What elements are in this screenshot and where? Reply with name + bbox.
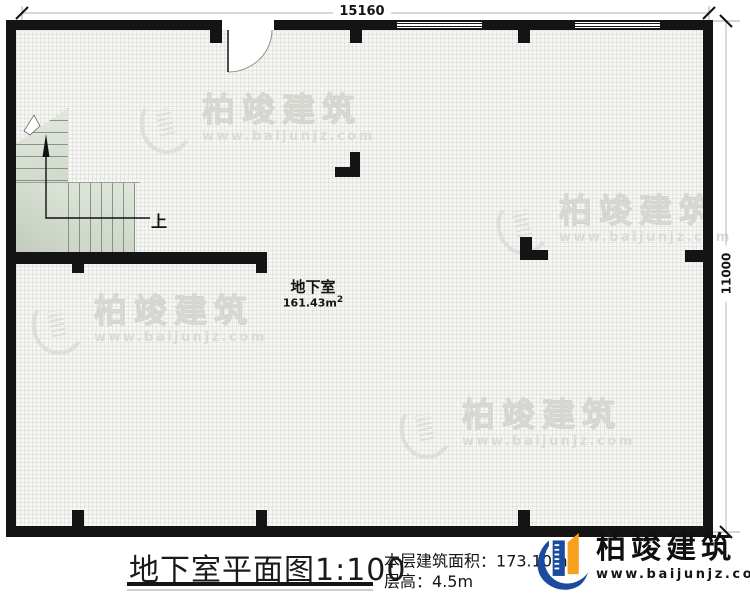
- dimension-label-top: 15160: [333, 4, 391, 19]
- column-pier: [518, 30, 530, 43]
- room-area-sup: 2: [337, 295, 343, 305]
- wall-top-segment: [482, 20, 575, 30]
- watermark-url: www.baijunjz.com: [202, 129, 375, 144]
- l-column: [520, 250, 548, 260]
- dimension-tick: [703, 7, 715, 19]
- watermark-logo-icon: [27, 292, 90, 360]
- watermark: 柏竣建筑 www.baijunjz.com: [32, 293, 267, 355]
- window-symbol: [397, 20, 482, 30]
- watermark-brand-name: 柏竣建筑: [462, 397, 635, 433]
- wall-top-segment: [6, 20, 222, 30]
- watermark-text: 柏竣建筑 www.baijunjz.com: [202, 92, 375, 144]
- window-glazing-line: [575, 23, 660, 24]
- column-pier: [210, 30, 222, 43]
- wall-top-segment: [274, 20, 397, 30]
- floor-height-label: 层高：: [384, 572, 432, 591]
- column-pier: [256, 510, 267, 526]
- brand-logo: 柏竣建筑 www.baijunjz.com: [534, 531, 750, 591]
- column-pier: [518, 510, 530, 526]
- room-label: 地下室 161.43m2: [276, 279, 350, 309]
- watermark-text: 柏竣建筑 www.baijunjz.com: [94, 293, 267, 345]
- wall-left: [6, 20, 16, 537]
- logo-tower-orange: [568, 533, 579, 574]
- watermark-url: www.baijunjz.com: [94, 330, 267, 345]
- watermark-building-icon: [155, 108, 175, 137]
- brand-name: 柏竣建筑: [596, 531, 750, 567]
- title-underline-thin: [127, 589, 373, 591]
- brand-logo-icon: [534, 531, 590, 591]
- floor-plan-sheet: 柏竣建筑 www.baijunjz.com 柏竣建筑 www.baijunjz.…: [0, 0, 750, 598]
- wall-stub: [685, 250, 703, 262]
- watermark-brand-name: 柏竣建筑: [202, 92, 375, 128]
- window-glazing-line: [397, 26, 482, 27]
- column-pier: [350, 30, 362, 43]
- floor-height-value: 4.5m: [432, 572, 473, 591]
- watermark-logo-icon: [395, 396, 458, 464]
- room-name: 地下室: [276, 279, 350, 296]
- column-pier: [72, 252, 84, 273]
- title-underline-thick: [127, 582, 373, 586]
- room-area: 161.43m2: [276, 296, 350, 310]
- interior-wall: [6, 252, 267, 264]
- floor-area-label: 本层建筑面积：: [384, 551, 496, 570]
- stair-up-label: 上: [151, 208, 167, 232]
- l-column: [335, 167, 360, 177]
- window-symbol: [575, 20, 660, 30]
- watermark: 柏竣建筑 www.baijunjz.com: [497, 193, 732, 255]
- watermark: 柏竣建筑 www.baijunjz.com: [140, 92, 375, 154]
- watermark-building-icon: [47, 309, 67, 338]
- brand-text: 柏竣建筑 www.baijunjz.com: [596, 531, 750, 582]
- watermark: 柏竣建筑 www.baijunjz.com: [400, 397, 635, 459]
- wall-right: [703, 20, 713, 537]
- watermark-url: www.baijunjz.com: [462, 434, 635, 449]
- dimension-label-right: 11000: [720, 246, 735, 302]
- watermark-logo-icon: [135, 91, 198, 159]
- window-glazing-line: [397, 23, 482, 24]
- brand-url: www.baijunjz.com: [596, 567, 750, 582]
- stair-landing: [16, 183, 68, 252]
- watermark-building-icon: [512, 209, 532, 238]
- watermark-building-icon: [415, 413, 435, 442]
- dimension-tick: [16, 7, 28, 19]
- stair-edge-line: [16, 182, 140, 183]
- interior-wall-end-pier: [256, 252, 267, 273]
- window-glazing-line: [575, 26, 660, 27]
- room-area-value: 161.43m: [283, 296, 337, 309]
- watermark-brand-name: 柏竣建筑: [94, 293, 267, 329]
- column-pier: [72, 510, 84, 526]
- dimension-tick: [720, 15, 732, 27]
- stair-lower-flight: [68, 183, 135, 252]
- watermark-text: 柏竣建筑 www.baijunjz.com: [462, 397, 635, 449]
